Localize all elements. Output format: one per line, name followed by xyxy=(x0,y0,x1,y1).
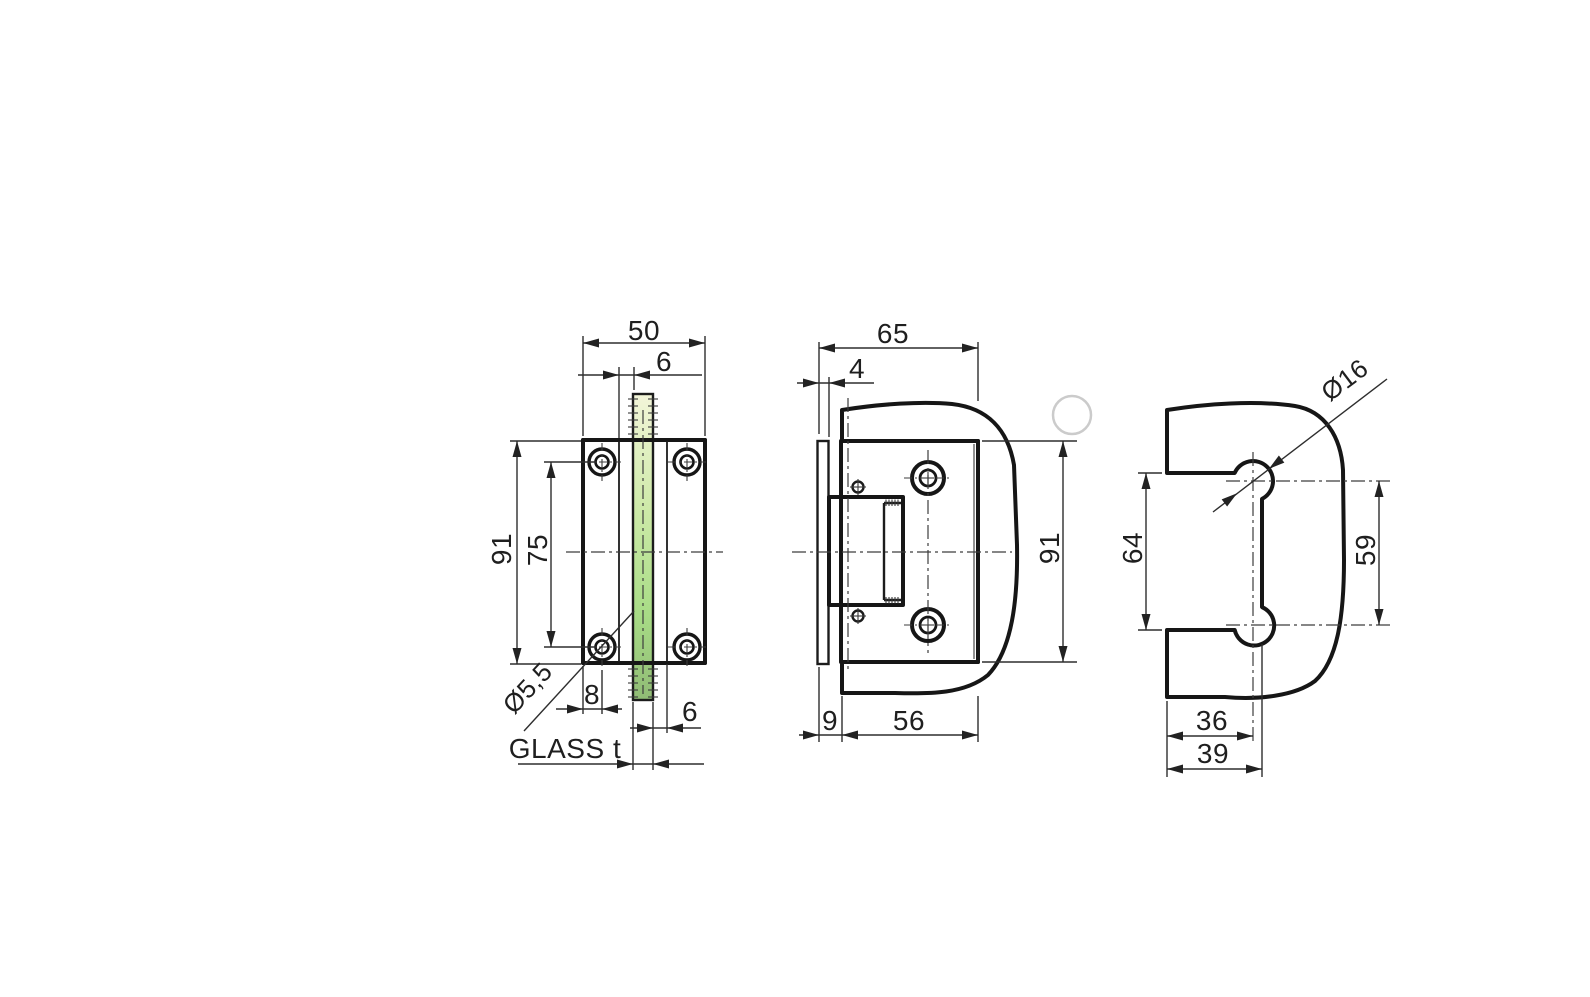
dim-label-39: 39 xyxy=(1197,738,1229,769)
dim-hole-spacing-59: 59 xyxy=(1350,481,1384,625)
dim-label-59: 59 xyxy=(1350,534,1381,566)
dim-label-dia-16: Ø16 xyxy=(1315,353,1374,407)
glass-panel-cutout xyxy=(1167,403,1344,698)
clamp-screw-bottom-right xyxy=(668,628,706,666)
artifact-circle xyxy=(1053,396,1091,434)
dim-label-6-bottom: 6 xyxy=(682,696,698,727)
dim-offset-9: 9 xyxy=(819,667,842,742)
glass-cutout-view xyxy=(1167,403,1392,744)
dim-label-65: 65 xyxy=(877,318,909,349)
dim-label-36: 36 xyxy=(1196,705,1228,736)
front-view xyxy=(566,394,723,700)
dim-opening-height-64: 64 xyxy=(1117,473,1162,630)
hinge-technical-drawing: 50 6 91 75 Ø5,5 xyxy=(0,0,1590,997)
dim-label-56: 56 xyxy=(893,705,925,736)
dim-edge-to-hole-8: 8 xyxy=(556,666,622,714)
dim-label-50: 50 xyxy=(628,315,660,346)
dim-label-8: 8 xyxy=(584,679,600,710)
clamp-screw-top-right xyxy=(668,443,706,481)
dim-hole-diameter-16: Ø16 xyxy=(1213,353,1387,512)
dim-label-6-top: 6 xyxy=(656,346,672,377)
dim-label-91-side: 91 xyxy=(1034,532,1065,564)
front-view-dimensions: 50 6 91 75 Ø5,5 xyxy=(486,315,705,770)
dim-label-75: 75 xyxy=(522,534,553,566)
dim-wall-plate-4: 4 xyxy=(797,353,874,437)
dim-label-9: 9 xyxy=(822,705,838,736)
dim-label-dia-5-5: Ø5,5 xyxy=(497,656,559,719)
drawing-sheet: 50 6 91 75 Ø5,5 xyxy=(0,0,1590,997)
dim-label-glass-t: GLASS t xyxy=(509,733,621,764)
set-screw-top xyxy=(850,479,866,495)
set-screw-bottom xyxy=(850,608,866,624)
dim-label-91-front: 91 xyxy=(486,533,517,565)
dim-glass-thickness: GLASS t xyxy=(509,702,704,770)
cutout-view-dimensions: Ø16 64 59 36 39 xyxy=(1117,353,1387,777)
dim-label-4: 4 xyxy=(849,353,865,384)
glass-panel-side xyxy=(842,403,1017,694)
dim-label-64: 64 xyxy=(1117,532,1148,564)
